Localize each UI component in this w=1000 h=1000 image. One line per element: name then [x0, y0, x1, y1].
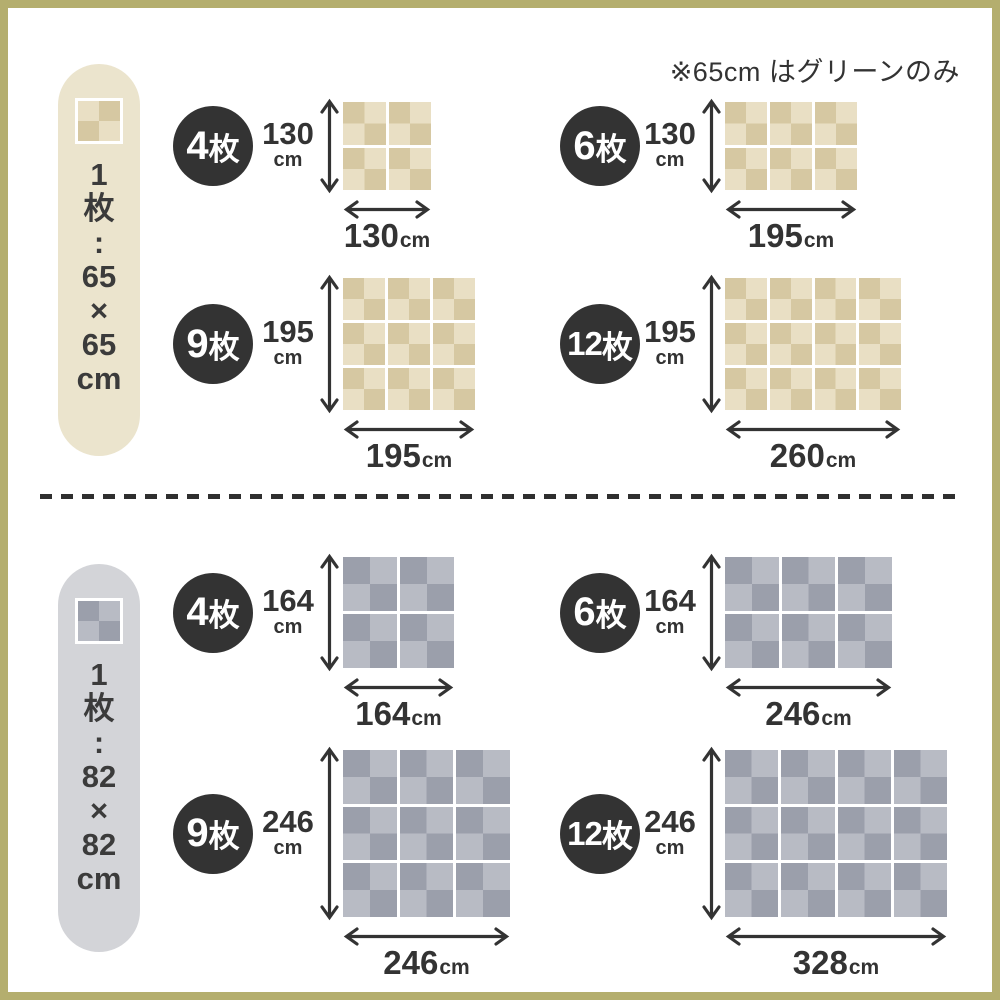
mat-piece — [838, 557, 892, 611]
mat-piece — [838, 807, 891, 861]
count-suffix: 枚 — [596, 590, 627, 635]
mat-piece — [894, 807, 947, 861]
mat-piece — [456, 807, 510, 861]
mat-piece — [838, 863, 891, 917]
width-value: 246 — [383, 944, 438, 982]
mat-piece — [781, 750, 834, 804]
section-82cm-mats: 1枚:82×82cm4枚164cm164cm6枚164cm246cm9枚246c… — [0, 0, 1000, 1000]
count-number: 12 — [567, 815, 602, 853]
mat-piece — [725, 557, 779, 611]
count-number: 6 — [573, 590, 595, 635]
width-value: 328 — [793, 944, 848, 982]
mat-size-infographic: ※65cm はグリーンのみ 1枚:65×65cm4枚130cm130cm6枚13… — [0, 0, 1000, 1000]
mat-piece — [894, 863, 947, 917]
unit-size-char: : — [94, 726, 104, 760]
count-suffix: 枚 — [209, 811, 240, 856]
unit-size-char: cm — [77, 862, 122, 896]
mat-piece — [400, 557, 454, 611]
width-unit: cm — [821, 707, 851, 731]
mat-piece — [894, 750, 947, 804]
mat-piece — [400, 614, 454, 668]
width-value: 246 — [765, 695, 820, 733]
mat-piece — [343, 863, 397, 917]
height-arrow — [317, 553, 342, 672]
unit-size-char: × — [90, 794, 108, 828]
height-arrow — [317, 746, 342, 921]
mat-piece — [400, 863, 454, 917]
unit-size-label: 1枚:82×82cm — [77, 658, 122, 896]
mat-piece — [782, 557, 836, 611]
unit-size-char: 82 — [82, 828, 116, 862]
checker-pattern-icon — [78, 601, 120, 641]
single-mat-icon — [75, 598, 123, 644]
width-dimension-label: 328cm — [725, 944, 947, 982]
mat-piece — [781, 807, 834, 861]
mat-piece — [725, 863, 778, 917]
mat-piece — [838, 614, 892, 668]
mat-piece — [725, 750, 778, 804]
height-arrow — [699, 553, 724, 672]
mat-piece — [343, 557, 397, 611]
mat-piece — [400, 750, 454, 804]
mat-piece — [725, 614, 779, 668]
width-value: 164 — [355, 695, 410, 733]
count-number: 4 — [186, 590, 208, 635]
height-arrow — [699, 746, 724, 921]
width-unit: cm — [439, 956, 469, 980]
mat-grid — [725, 557, 892, 668]
mat-piece — [838, 750, 891, 804]
mat-piece — [456, 750, 510, 804]
mat-grid — [343, 557, 454, 668]
mat-piece — [343, 614, 397, 668]
unit-size-char: 枚 — [84, 692, 115, 726]
unit-size-char: 1 — [90, 658, 107, 692]
width-dimension-label: 164cm — [343, 695, 454, 733]
mat-piece — [725, 807, 778, 861]
mat-piece — [456, 863, 510, 917]
mat-piece — [781, 863, 834, 917]
mat-piece — [782, 614, 836, 668]
count-badge: 9枚 — [173, 794, 253, 874]
unit-size-char: 82 — [82, 760, 116, 794]
width-unit: cm — [411, 707, 441, 731]
count-number: 9 — [186, 811, 208, 856]
count-badge: 4枚 — [173, 573, 253, 653]
mat-piece — [343, 807, 397, 861]
mat-piece — [400, 807, 454, 861]
width-unit: cm — [849, 956, 879, 980]
width-dimension-label: 246cm — [343, 944, 510, 982]
unit-size-pill: 1枚:82×82cm — [58, 564, 140, 952]
mat-piece — [343, 750, 397, 804]
mat-grid — [343, 750, 510, 917]
count-suffix: 枚 — [209, 590, 240, 635]
mat-grid — [725, 750, 947, 917]
width-dimension-label: 246cm — [725, 695, 892, 733]
